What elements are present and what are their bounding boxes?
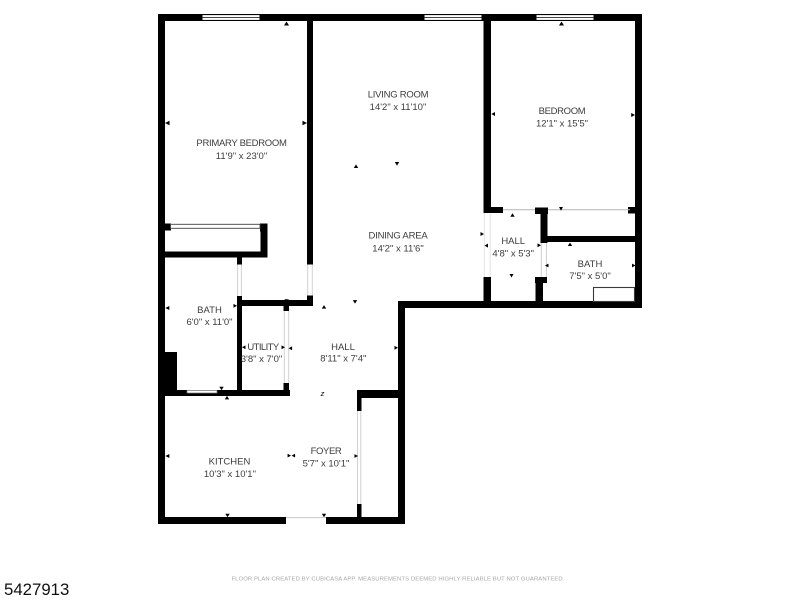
svg-text:12'1" x 15'5": 12'1" x 15'5" bbox=[536, 118, 588, 129]
svg-text:5'7" x 10'1": 5'7" x 10'1" bbox=[303, 458, 350, 469]
svg-text:BATH: BATH bbox=[578, 259, 603, 270]
svg-text:FLOOR PLAN CREATED BY CUBICASA: FLOOR PLAN CREATED BY CUBICASA APP. MEAS… bbox=[231, 577, 564, 583]
svg-text:BATH: BATH bbox=[197, 305, 222, 316]
svg-text:14'2" x 11'6": 14'2" x 11'6" bbox=[372, 244, 423, 255]
svg-text:PRIMARY BEDROOM: PRIMARY BEDROOM bbox=[196, 138, 287, 149]
svg-text:4'8" x 5'3": 4'8" x 5'3" bbox=[492, 249, 534, 260]
svg-text:z: z bbox=[320, 389, 325, 398]
svg-text:HALL: HALL bbox=[501, 236, 525, 247]
svg-text:BEDROOM: BEDROOM bbox=[539, 106, 586, 117]
svg-text:KITCHEN: KITCHEN bbox=[209, 457, 251, 468]
svg-text:FOYER: FOYER bbox=[311, 446, 342, 457]
svg-text:10'3" x 10'1": 10'3" x 10'1" bbox=[204, 469, 256, 480]
svg-text:6'0" x 11'0": 6'0" x 11'0" bbox=[186, 317, 232, 328]
svg-text:8'11" x 7'4": 8'11" x 7'4" bbox=[320, 353, 366, 364]
svg-text:3'8" x 7'0": 3'8" x 7'0" bbox=[241, 354, 283, 365]
svg-text:11'9" x 23'0": 11'9" x 23'0" bbox=[216, 151, 267, 162]
svg-text:LIVING ROOM: LIVING ROOM bbox=[368, 90, 429, 101]
svg-text:UTILITY: UTILITY bbox=[247, 342, 279, 353]
svg-text:DINING AREA: DINING AREA bbox=[368, 231, 428, 242]
svg-text:5427913: 5427913 bbox=[4, 580, 69, 599]
svg-text:14'2" x 11'10": 14'2" x 11'10" bbox=[370, 102, 427, 113]
svg-text:HALL: HALL bbox=[331, 342, 355, 353]
svg-text:7'5" x 5'0": 7'5" x 5'0" bbox=[569, 271, 611, 282]
